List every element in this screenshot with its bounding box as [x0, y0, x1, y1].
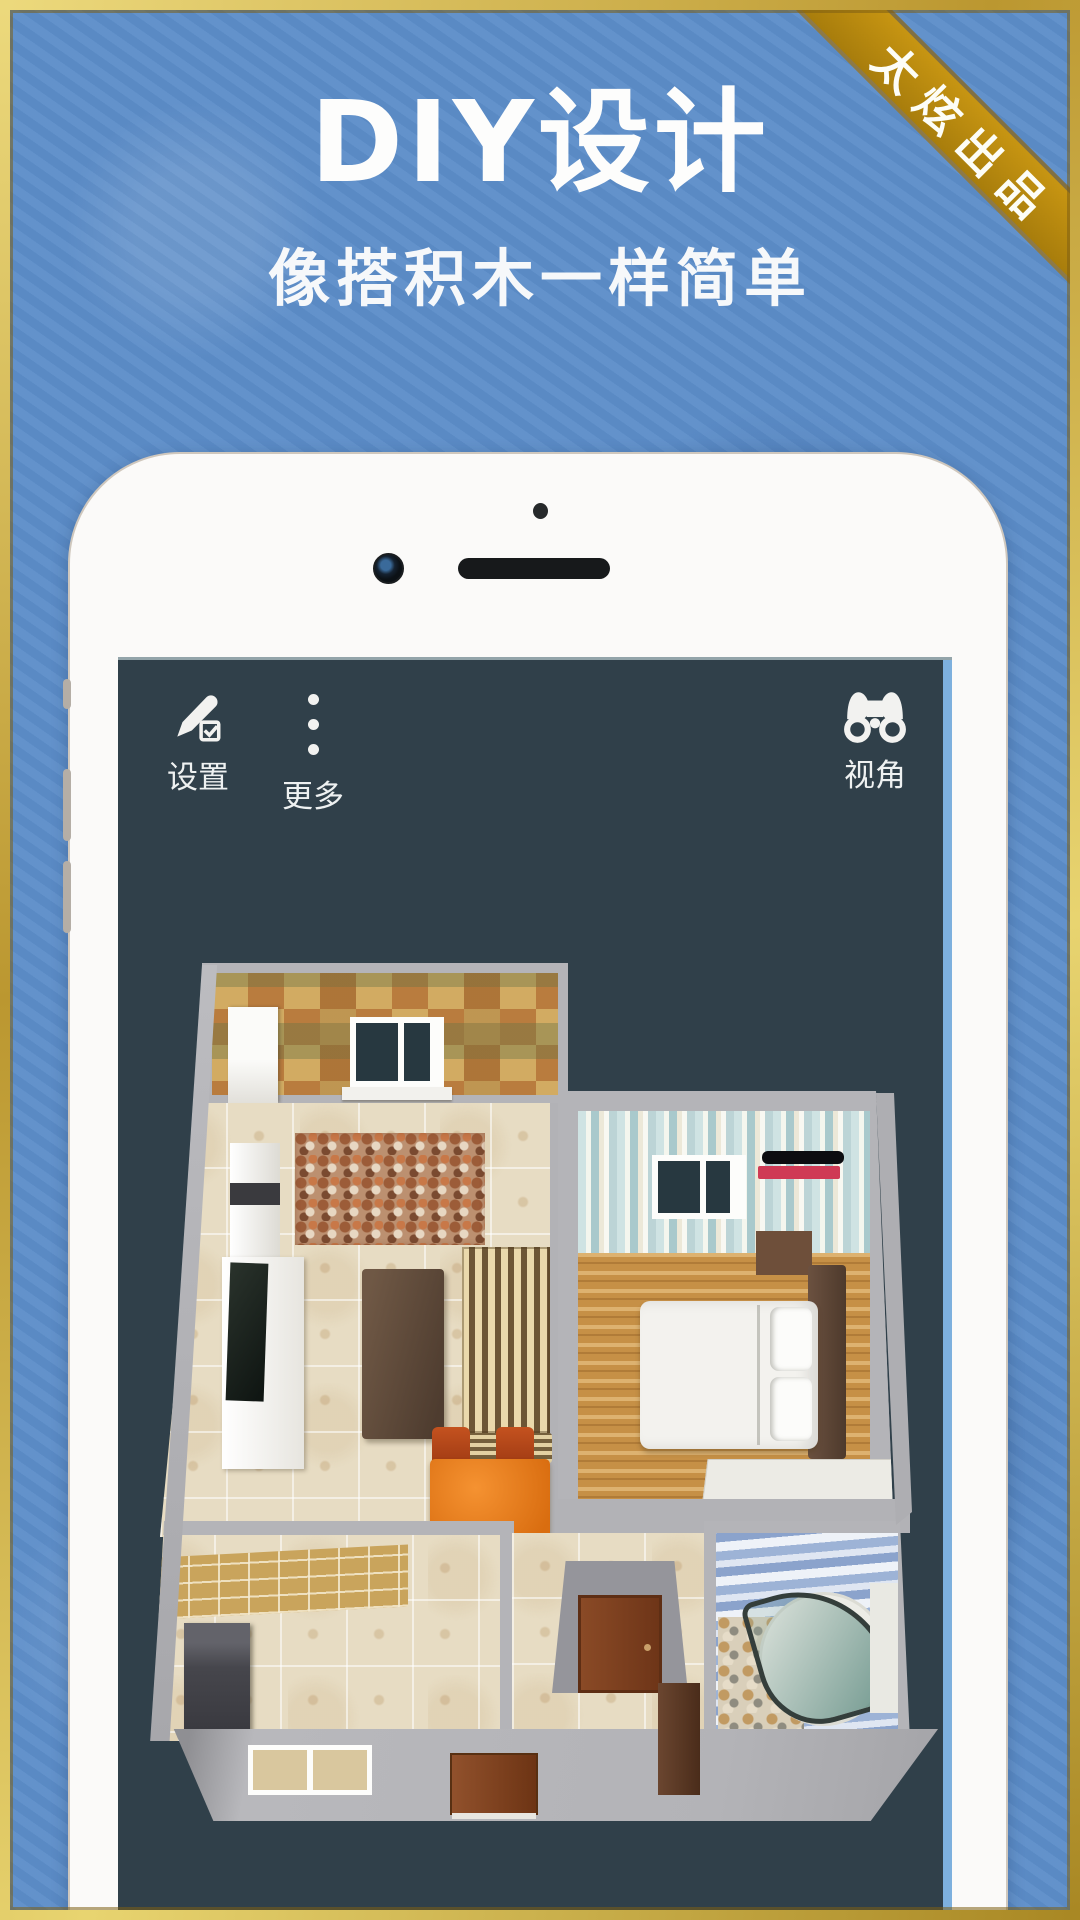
- tv: [226, 1262, 269, 1401]
- bathroom-ledge: [870, 1583, 898, 1713]
- promo-page: DIY设计 像搭积木一样简单 太炫出品 设置 更多: [0, 0, 1080, 1920]
- pillow: [770, 1307, 812, 1371]
- volume-down-button: [63, 861, 71, 933]
- bedroom-window: [652, 1155, 746, 1219]
- storage-room: [148, 1521, 514, 1741]
- app-screen: 设置 更多 视角: [118, 657, 952, 1920]
- earpiece-speaker: [458, 558, 610, 579]
- bedside-bench: [756, 1231, 812, 1275]
- coffee-table: [362, 1269, 444, 1439]
- wardrobe: [658, 1683, 700, 1795]
- kitchen-cabinet: [228, 1007, 278, 1103]
- kitchen-window: [350, 1017, 444, 1087]
- screen-edge-strip: [943, 660, 952, 1920]
- exterior-wall-front: [150, 1729, 942, 1821]
- page-subtitle: 像搭积木一样简单: [0, 228, 1080, 318]
- mosaic-rug: [295, 1133, 485, 1245]
- front-camera: [373, 553, 404, 584]
- interior-door-wall: [552, 1561, 688, 1693]
- air-conditioner: [758, 1151, 844, 1181]
- volume-up-button: [63, 769, 71, 841]
- front-window: [248, 1745, 372, 1795]
- bedroom: [558, 1091, 894, 1537]
- floorplan-3d-view[interactable]: [118, 660, 952, 1920]
- bathroom: [704, 1521, 910, 1741]
- sofa: [462, 1247, 550, 1433]
- water-dispenser: [230, 1143, 280, 1263]
- proximity-sensor: [533, 503, 548, 519]
- brick-wall: [158, 1544, 408, 1619]
- front-door: [450, 1753, 538, 1815]
- pillow: [770, 1377, 812, 1441]
- interior-door: [578, 1595, 662, 1693]
- stove: [184, 1623, 250, 1735]
- mute-switch: [63, 679, 71, 709]
- kitchen-window-sill: [342, 1087, 452, 1100]
- phone-mockup: 设置 更多 视角: [68, 452, 1008, 1920]
